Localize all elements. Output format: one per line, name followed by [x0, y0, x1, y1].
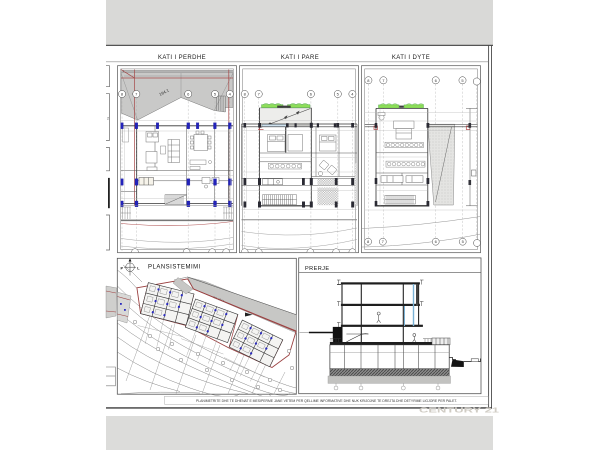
svg-text:PLANIMETRITE DHE TE DHENAT E M: PLANIMETRITE DHE TE DHENAT E MESIPERME J…: [196, 399, 457, 403]
svg-text:KATI I DYTE: KATI I DYTE: [392, 55, 430, 61]
svg-text:2: 2: [107, 117, 109, 121]
svg-text:PRERJE: PRERJE: [305, 266, 329, 272]
svg-text:KATI I PARE: KATI I PARE: [281, 55, 319, 61]
svg-text:PLANSISTEMIMI: PLANSISTEMIMI: [148, 264, 201, 270]
svg-text:CENTURY 21: CENTURY 21: [419, 405, 500, 414]
svg-text:KATI I PERDHE: KATI I PERDHE: [158, 55, 206, 61]
